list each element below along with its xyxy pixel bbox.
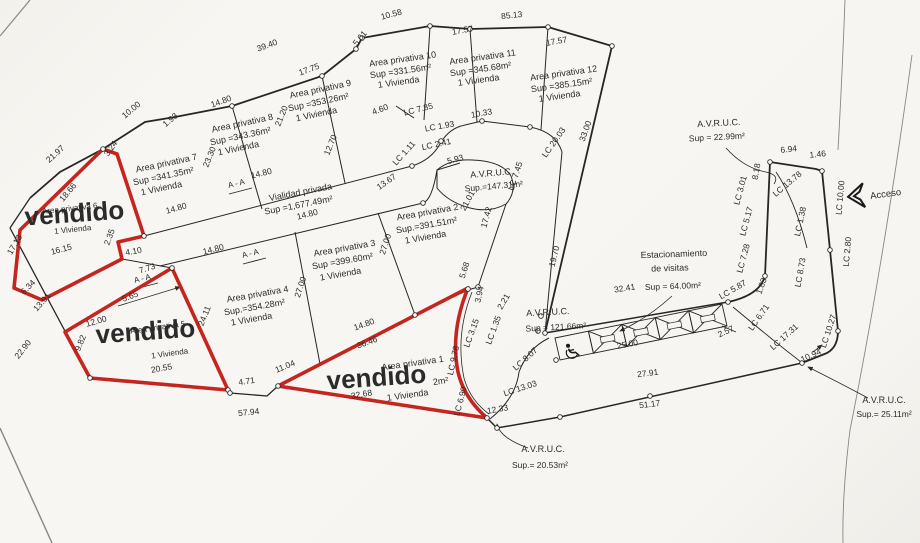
vendido-label: vendido	[95, 313, 197, 350]
survey-point	[170, 266, 175, 271]
survey-point	[763, 274, 768, 279]
survey-point	[546, 25, 551, 30]
survey-point	[554, 358, 559, 363]
curve-length-label: LC 8.73	[793, 257, 808, 288]
dimension-label: 24.11	[196, 304, 213, 327]
avruc-sup: Sup = 121.66m²	[525, 320, 586, 333]
dimension-label: 1.83	[754, 276, 769, 295]
avruc-sup: Sup = 22.99m²	[689, 131, 746, 144]
curve-length-label: LC 6.90	[451, 385, 468, 417]
dimension-label: 9.82	[72, 333, 88, 352]
dimension-label: 19.70	[547, 244, 562, 267]
parking-stall-chip	[667, 321, 682, 330]
survey-point	[413, 313, 418, 318]
dimension-label: 10.58	[380, 6, 403, 21]
dimension-label: 2.35	[102, 227, 117, 246]
dimension-label: 21.97	[44, 143, 67, 165]
curve-length-label: LC 17.31	[768, 321, 801, 352]
survey-point	[768, 160, 773, 165]
curve-length-label: LC 1.38	[792, 206, 808, 237]
parking-sup: Sup = 64.00m²	[645, 280, 701, 292]
survey-point	[428, 24, 433, 29]
section-label: A - A	[227, 177, 246, 190]
dimension-label: 6.94	[780, 143, 798, 155]
access-arrow-icon	[847, 183, 865, 209]
survey-point	[230, 104, 235, 109]
dimension-label: 36.46	[355, 334, 379, 351]
parking-label: de visitas	[651, 262, 689, 273]
survey-point	[648, 394, 653, 399]
curve-length-label: LC 5.17	[737, 205, 754, 237]
site-plan: Area privativa 7Sup =341.35m²1 ViviendaA…	[0, 0, 920, 543]
dimension-label: 7.73	[138, 261, 157, 276]
dimension-label: 16.15	[50, 241, 73, 256]
lot-viviendas: 1 Vivienda	[151, 346, 190, 360]
survey-point	[88, 376, 93, 381]
survey-point	[276, 384, 281, 389]
dimension-label: 17.57	[545, 34, 568, 48]
curve-length-label: LC 3.01	[731, 174, 748, 206]
dimension-label: 4.60	[370, 102, 389, 117]
dimension-label: 17.13	[5, 233, 24, 257]
dimension-label: 20.55	[150, 361, 173, 375]
survey-point	[485, 416, 490, 421]
paper-edge-artifacts	[0, 0, 912, 543]
dimension-label: 32.41	[613, 281, 636, 294]
curve-length-label: LC 20.03	[540, 125, 568, 159]
dimension-label: 13.67	[375, 171, 398, 192]
curve-length-label: LC 3.15	[461, 317, 481, 349]
avruc-label: A.V.R.U.C.	[862, 395, 905, 405]
survey-point	[558, 415, 563, 420]
avruc-sup: Sup.= 20.53m²	[512, 460, 568, 470]
dimension-label: 2.21	[495, 292, 512, 312]
dimension-label: 5.01	[351, 28, 369, 47]
avruc-label: A.V.R.U.C.	[526, 306, 570, 318]
survey-point	[421, 201, 426, 206]
dimension-label: 4.10	[124, 245, 142, 258]
survey-point	[466, 287, 471, 292]
survey-point	[142, 234, 147, 239]
dimension-label: 10.00	[120, 99, 143, 121]
dimension-label: 21.20	[273, 104, 290, 128]
dimension-label: 3.94	[472, 285, 485, 304]
dimension-label: 1.46	[809, 148, 827, 160]
curve-length-label: LC 7.28	[734, 242, 751, 274]
survey-point	[610, 44, 615, 49]
curve-length-label: LC 1.11	[390, 139, 417, 168]
survey-point	[410, 164, 415, 169]
avruc-label: A.V.R.U.C.	[521, 444, 564, 454]
curve-length-label: LC 13.78	[771, 169, 804, 199]
avruc-sup: Sup.= 25.11m²	[856, 409, 912, 419]
acceso-label: Acceso	[869, 187, 901, 202]
survey-point	[495, 426, 500, 431]
survey-point	[836, 329, 841, 334]
curve-length-label: LC 1.35	[483, 314, 503, 346]
dimension-label: 14.80	[165, 200, 188, 216]
dimension-label: 85.13	[501, 9, 523, 21]
survey-point	[228, 391, 233, 396]
curve-length-label: LC 13.03	[502, 378, 538, 398]
dimension-label: 11.04	[273, 358, 296, 375]
dimension-label: 4.71	[238, 375, 256, 387]
dimension-label: 22.90	[12, 337, 33, 360]
survey-point	[320, 74, 325, 79]
survey-point	[726, 300, 731, 305]
parking-label: Estacionamiento	[640, 248, 707, 260]
dimension-label: 10.94	[799, 346, 823, 364]
curve-length-label: LC 2.80	[841, 236, 854, 267]
parking-stall-chip	[700, 314, 715, 323]
curve-length-label: LC 10.00	[834, 180, 847, 216]
parking-stall	[555, 331, 593, 360]
avruc-label: A.V.R.U.C.	[697, 117, 741, 129]
parking-stalls	[555, 304, 727, 360]
dimension-label: 5.93	[446, 152, 465, 166]
dimension-label: 17.75	[297, 61, 321, 78]
curve-length-label: LC 8.07	[511, 345, 540, 373]
parking-stall-chip	[634, 328, 649, 337]
survey-point	[820, 169, 825, 174]
survey-point	[528, 125, 533, 130]
dimension-label: 2.57	[716, 323, 735, 339]
survey-point	[828, 248, 833, 253]
dimension-label: 17.42	[479, 205, 494, 228]
dimension-label: 5.65	[120, 289, 139, 304]
dimension-label: 12.33	[486, 402, 509, 416]
dimension-label: 14.80	[352, 316, 376, 333]
dimension-label: 51.17	[638, 398, 661, 411]
dimension-label: 1.93	[161, 110, 180, 128]
dimension-label: 27.91	[636, 367, 659, 380]
dimension-label: 8.18	[750, 162, 763, 180]
curve-length-label: LC 7.85	[403, 101, 435, 118]
lot-sup: 2m²	[432, 375, 449, 387]
dimension-label: 14.80	[250, 166, 273, 181]
dimension-label: 27.00	[377, 232, 393, 256]
parking-stall-chip	[600, 335, 615, 344]
dimension-label: 6.34	[18, 277, 37, 296]
survey-point	[480, 119, 485, 124]
site-plan-svg: Area privativa 7Sup =341.35m²1 ViviendaA…	[0, 0, 920, 543]
dimension-label: 10.33	[470, 106, 493, 120]
section-label: A - A	[241, 247, 260, 260]
avruc-label: A.V.R.U.C.	[470, 166, 514, 180]
vendido-label: vendido	[24, 195, 126, 232]
dimension-label: 25.00	[616, 337, 639, 351]
dimension-label: 39.40	[255, 37, 279, 54]
dimension-label: 14.80	[202, 242, 225, 257]
dimension-label: 57.94	[238, 406, 260, 418]
dimension-label: 23.30	[201, 145, 218, 169]
dimension-label: 5.68	[457, 260, 472, 279]
